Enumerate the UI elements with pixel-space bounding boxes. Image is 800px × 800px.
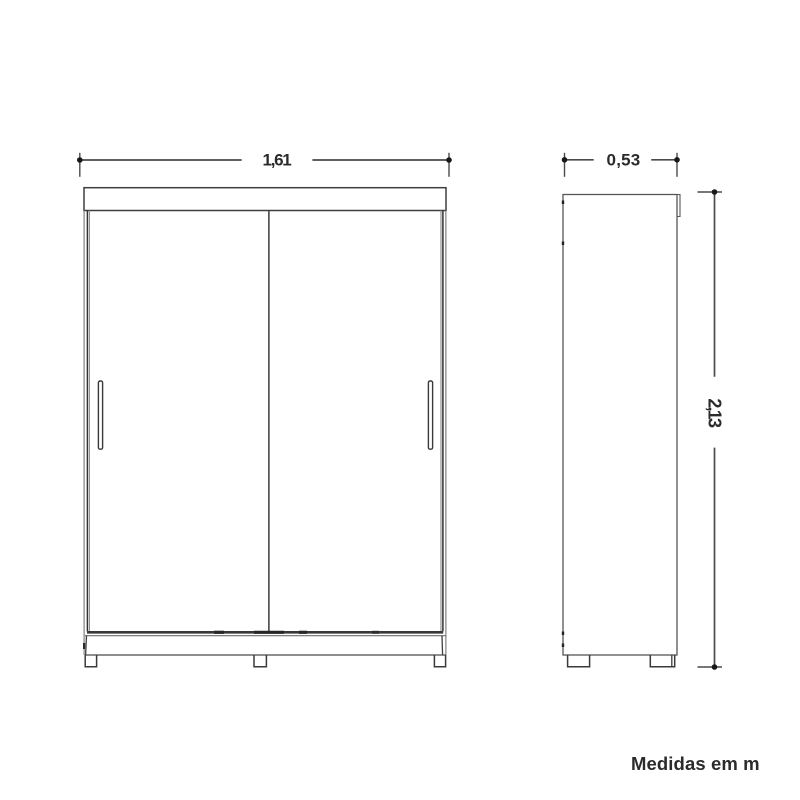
- svg-text:2,13: 2,13: [705, 398, 725, 428]
- svg-text:0,53: 0,53: [607, 150, 641, 169]
- svg-text:1,61: 1,61: [263, 150, 292, 169]
- svg-text:Medidas em m: Medidas em m: [631, 753, 760, 774]
